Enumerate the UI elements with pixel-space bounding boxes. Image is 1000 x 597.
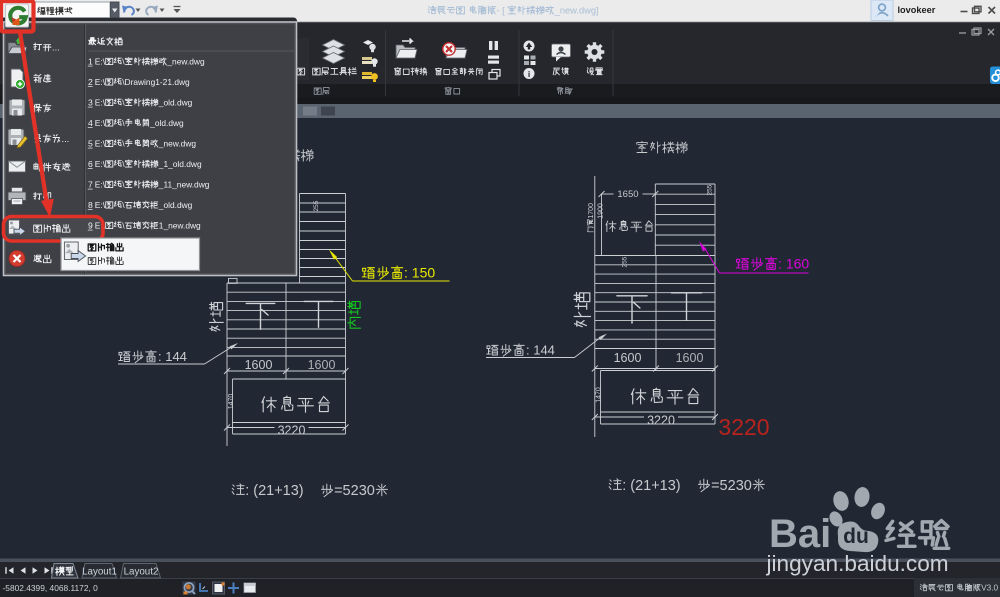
svg-text:1600: 1600: [308, 358, 336, 372]
svg-text:1470: 1470: [595, 387, 602, 403]
svg-text:3220: 3220: [278, 424, 306, 438]
svg-text:1600: 1600: [676, 351, 704, 365]
svg-text:: 160: : 160: [778, 256, 809, 272]
svg-text:E:\: E:\: [95, 138, 106, 148]
svg-text:1900: 1900: [598, 203, 605, 219]
svg-text:3220: 3220: [718, 414, 769, 440]
svg-text:4: 4: [88, 118, 93, 128]
svg-text:Bai: Bai: [769, 512, 831, 556]
svg-text:=5230: =5230: [711, 478, 752, 494]
svg-text:2: 2: [88, 77, 93, 87]
svg-text:jingyan.baidu.com: jingyan.baidu.com: [766, 551, 949, 576]
svg-text:E:\: E:\: [95, 56, 106, 66]
svg-text:7: 7: [88, 179, 93, 189]
svg-text:1470: 1470: [228, 394, 235, 410]
svg-text:...: ...: [62, 134, 70, 144]
svg-text:E:\: E:\: [95, 77, 106, 87]
svg-text:_11_new.dwg: _11_new.dwg: [158, 179, 210, 189]
svg-text:5: 5: [88, 138, 93, 148]
svg-text:Layout2: Layout2: [124, 567, 159, 578]
svg-text:3: 3: [88, 97, 93, 107]
svg-text:_1_old.dwg: _1_old.dwg: [158, 159, 202, 169]
svg-text:1650: 1650: [617, 189, 638, 200]
svg-text:\Drawing1-21.dwg: \Drawing1-21.dwg: [122, 77, 190, 87]
svg-text:6: 6: [88, 159, 93, 169]
svg-text:Layout1: Layout1: [82, 567, 117, 578]
svg-text:: (21+13): : (21+13): [622, 478, 680, 494]
svg-text:1600: 1600: [245, 358, 273, 372]
svg-text:9: 9: [88, 220, 93, 230]
svg-text:- [: - [: [496, 6, 505, 16]
svg-text:E:\: E:\: [95, 159, 106, 169]
svg-text:255: 255: [622, 256, 629, 267]
svg-text:: 144: : 144: [526, 343, 555, 358]
svg-text:255: 255: [313, 200, 320, 211]
svg-text:1600: 1600: [614, 351, 642, 365]
svg-text:=5230: =5230: [334, 483, 375, 499]
svg-text:E:\: E:\: [95, 118, 106, 128]
svg-text:_new.dwg: _new.dwg: [158, 138, 197, 148]
svg-text:lovokeer: lovokeer: [898, 5, 936, 15]
svg-text:: 150: : 150: [404, 265, 435, 281]
svg-text:...: ...: [52, 42, 60, 52]
svg-text:_new.dwg]: _new.dwg]: [554, 6, 599, 16]
svg-text:_old.dwg: _old.dwg: [158, 97, 193, 107]
svg-text:: (21+13): : (21+13): [245, 483, 303, 499]
svg-text:_old.dwg: _old.dwg: [158, 200, 193, 210]
svg-text:V3.0: V3.0: [981, 583, 998, 593]
svg-text:du: du: [843, 525, 869, 548]
svg-text:-5802.4399, 4068.1172, 0: -5802.4399, 4068.1172, 0: [3, 583, 99, 593]
svg-text:E:\: E:\: [95, 200, 106, 210]
svg-text:1: 1: [88, 56, 93, 66]
svg-text:255: 255: [707, 184, 714, 195]
svg-text:E:\: E:\: [95, 97, 106, 107]
svg-text:1_new.dwg: 1_new.dwg: [159, 220, 201, 230]
svg-text:: 144: : 144: [158, 349, 187, 364]
svg-text:E:\: E:\: [95, 179, 106, 189]
svg-text:8: 8: [88, 200, 93, 210]
svg-text:_old.dwg: _old.dwg: [149, 118, 184, 128]
svg-text:3220: 3220: [647, 414, 675, 428]
svg-text:_new.dwg: _new.dwg: [166, 56, 205, 66]
svg-text:1700: 1700: [588, 203, 595, 219]
svg-text:i: i: [528, 69, 530, 79]
